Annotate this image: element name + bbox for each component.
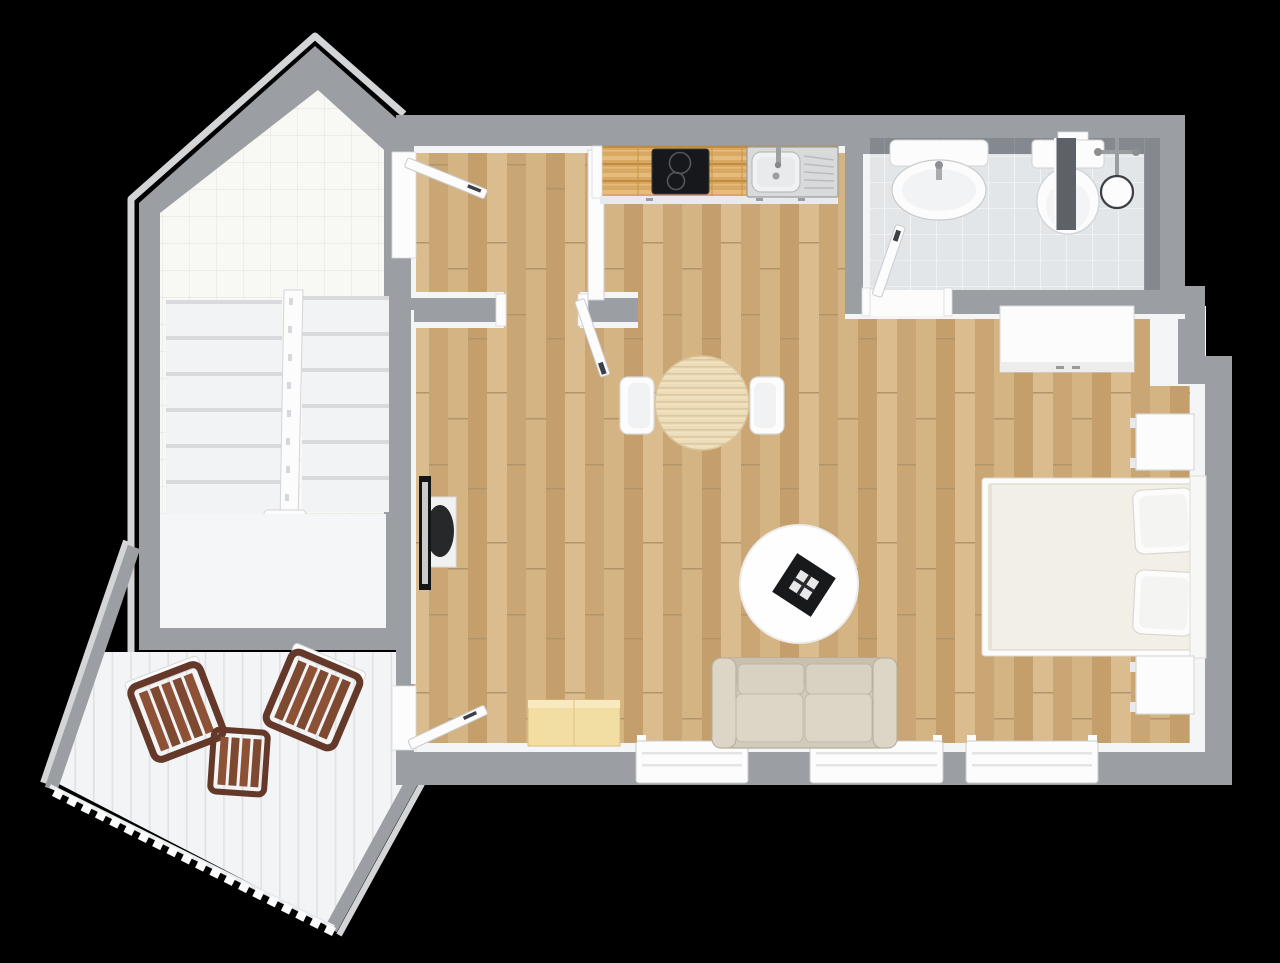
shower-glass-screen (1056, 138, 1076, 230)
sofa-armrest (712, 658, 736, 748)
stair-landing (160, 514, 386, 628)
faucet (776, 146, 781, 164)
sofa (712, 658, 897, 748)
back-cushion (806, 664, 872, 694)
staircase-room (131, 36, 404, 652)
nightstand-bottom (1130, 656, 1194, 714)
pillow-inner (1139, 494, 1190, 548)
left-wall-face-living (411, 310, 416, 684)
floor-plan (0, 0, 1280, 963)
right-wall-lower (1205, 382, 1232, 785)
right-wall-step (1178, 356, 1232, 384)
back-cushion (738, 664, 804, 694)
dresser (1000, 306, 1134, 372)
hall-door-jamb (496, 294, 506, 326)
pillow-inner (1139, 576, 1190, 630)
hall-partition-left (414, 298, 504, 324)
nightstand-top (1130, 414, 1194, 470)
hall-partition-face-living (414, 322, 504, 328)
hall-partition-face (414, 292, 504, 298)
bed (982, 476, 1206, 658)
bathroom-left-face (863, 154, 870, 290)
round-dining-table (655, 356, 749, 450)
headboard (1190, 476, 1206, 658)
stair-flight-left (166, 300, 282, 516)
window (966, 735, 1098, 783)
kitchen-sink (747, 146, 838, 197)
shower-head (1101, 176, 1133, 208)
bathroom-right-wall (1160, 115, 1185, 315)
chair-seat (754, 383, 776, 428)
cooktop (652, 149, 709, 194)
seat-cushion (805, 694, 872, 742)
lounge-rug (740, 525, 858, 643)
bathroom (845, 115, 1185, 319)
counter-end-panel (592, 146, 602, 198)
chair-seat (628, 383, 650, 428)
bathroom-sink (890, 140, 988, 220)
bathroom-wall-tiles-right (1144, 138, 1160, 290)
stair-flight-right (302, 296, 389, 512)
floor-plan-canvas (0, 0, 1280, 963)
sofa-armrest (873, 658, 897, 748)
seat-cushion (736, 694, 803, 742)
storage-bench (528, 700, 620, 746)
kitchenette (592, 146, 838, 204)
